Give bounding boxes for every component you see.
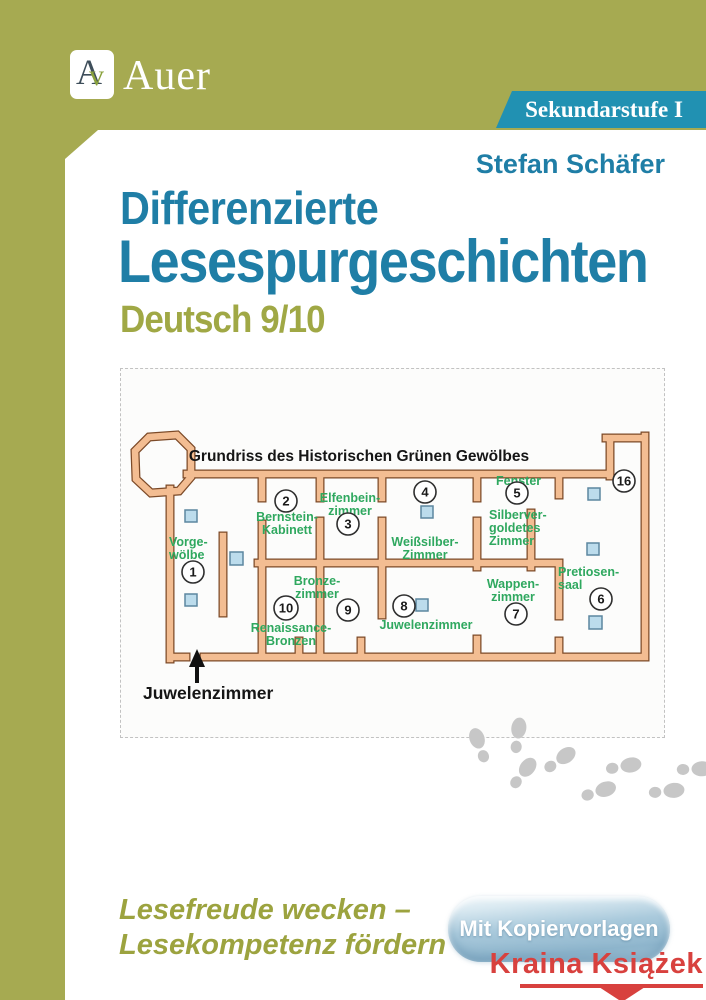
svg-text:8: 8 [400,599,407,614]
room-number-9: 9 [337,599,359,621]
room-label-silberver-1: Silberver- [489,508,547,522]
floor-plan-panel: Grundriss des Historischen Grünen Gewölb… [120,368,665,738]
room-number-6: 6 [590,588,612,610]
room-number-4: 4 [414,481,436,503]
svg-text:9: 9 [344,603,351,618]
exhibit-marker [185,594,197,606]
svg-text:6: 6 [597,592,604,607]
room-label-silberver-3: Zimmer [489,534,534,548]
plan-title: Grundriss des Historischen Grünen Gewölb… [189,448,529,465]
room-label-weisssilber-1: Weißsilber- [391,535,458,549]
room-number-10: 10 [274,596,298,620]
floor-plan-drawing: Grundriss des Historischen Grünen Gewölb… [121,369,663,736]
left-olive-band [0,0,65,1000]
room-label-elfenbein-1: Elfenbein- [320,491,380,505]
publisher-name: Auer [123,52,211,100]
svg-text:7: 7 [512,607,519,622]
room-label-bronze-2: zimmer [295,587,339,601]
room-label-renaissance-2: Bronzen [266,634,316,648]
cover-claim: Lesefreude wecken – Lesekompetenz förder… [119,893,446,963]
svg-text:4: 4 [421,485,429,500]
room-number-1: 1 [182,561,204,583]
room-label-bernstein-2: Kabinett [262,523,313,537]
open-book-icon [599,987,645,1000]
claim-line-1: Lesefreude wecken – [119,893,446,928]
svg-text:16: 16 [617,474,631,489]
title-line-2: Lesespurgeschichten [118,227,648,296]
claim-line-2: Lesekompetenz fördern [119,928,446,963]
room-number-8: 8 [393,595,415,617]
exhibit-marker [416,599,428,611]
room-label-juwelen: Juwelenzimmer [379,618,472,632]
room-number-5: 5 [506,482,528,504]
room-label-wappen-1: Wappen- [487,577,539,591]
exhibit-marker [588,488,600,500]
room-number-7: 7 [505,603,527,625]
logo-monogram-v: v [89,61,104,91]
publisher-logo: A v [70,50,114,99]
svg-text:2: 2 [282,494,289,509]
exhibit-marker [589,616,602,629]
room-label-pretiosen-1: Pretiosen- [558,565,619,579]
shop-watermark: Kraina Książek [446,948,706,1000]
exhibit-marker [587,543,599,555]
subtitle: Deutsch 9/10 [120,299,325,342]
author-name: Stefan Schäfer [476,149,665,180]
room-label-bronze-1: Bronze- [294,574,341,588]
room-label-silberver-2: goldetes [489,521,540,535]
svg-text:5: 5 [513,486,520,501]
room-label-weisssilber-2: Zimmer [402,548,447,562]
room-number-3: 3 [337,513,359,535]
room-number-16: 16 [613,470,635,492]
svg-text:10: 10 [279,601,293,616]
footprints-icon [440,713,706,818]
room-label-vorgewoelbe-2: wölbe [168,548,204,562]
exhibit-marker [185,510,197,522]
room-label-pretiosen-2: saal [558,578,582,592]
svg-text:3: 3 [344,517,351,532]
svg-text:1: 1 [189,565,196,580]
book-cover: A v Auer Sekundarstufe I Stefan Schäfer … [0,0,706,1000]
series-badge: Sekundarstufe I [496,91,706,128]
exhibit-marker [230,552,243,565]
exhibit-marker [421,506,433,518]
entrance-label: Juwelenzimmer [143,683,274,703]
corner-notch [65,130,98,159]
watermark-text: Kraina Książek [446,948,703,981]
room-number-2: 2 [275,490,297,512]
room-label-vorgewoelbe-1: Vorge- [169,535,208,549]
room-label-renaissance-1: Renaissance- [251,621,332,635]
room-label-wappen-2: zimmer [491,590,535,604]
